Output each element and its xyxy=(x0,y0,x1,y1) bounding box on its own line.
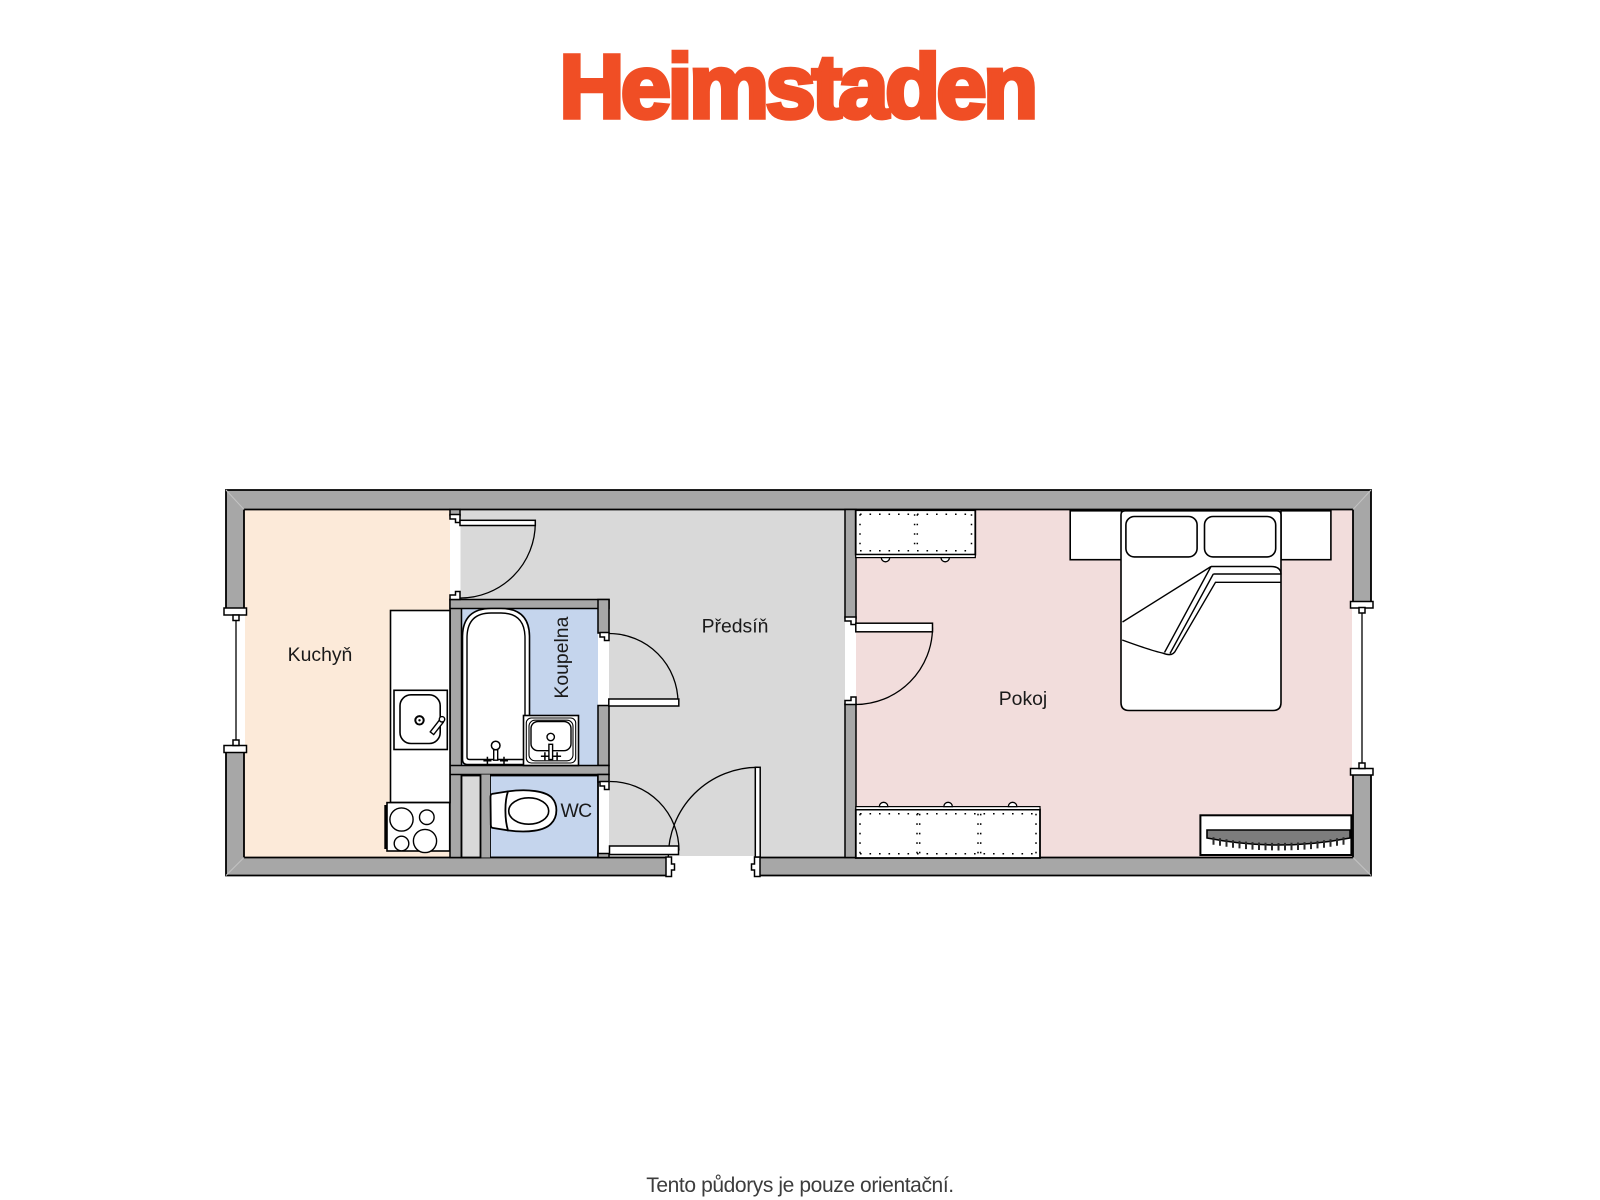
svg-text:Tento půdorys je pouze orienta: Tento půdorys je pouze orientační. xyxy=(646,1174,953,1197)
svg-text:Kuchyň: Kuchyň xyxy=(288,644,353,666)
svg-text:WC: WC xyxy=(560,800,592,822)
svg-text:Koupelna: Koupelna xyxy=(551,616,573,698)
svg-text:Předsíň: Předsíň xyxy=(702,615,769,637)
svg-text:Heimstaden: Heimstaden xyxy=(559,38,1034,138)
svg-text:Pokoj: Pokoj xyxy=(999,688,1048,710)
